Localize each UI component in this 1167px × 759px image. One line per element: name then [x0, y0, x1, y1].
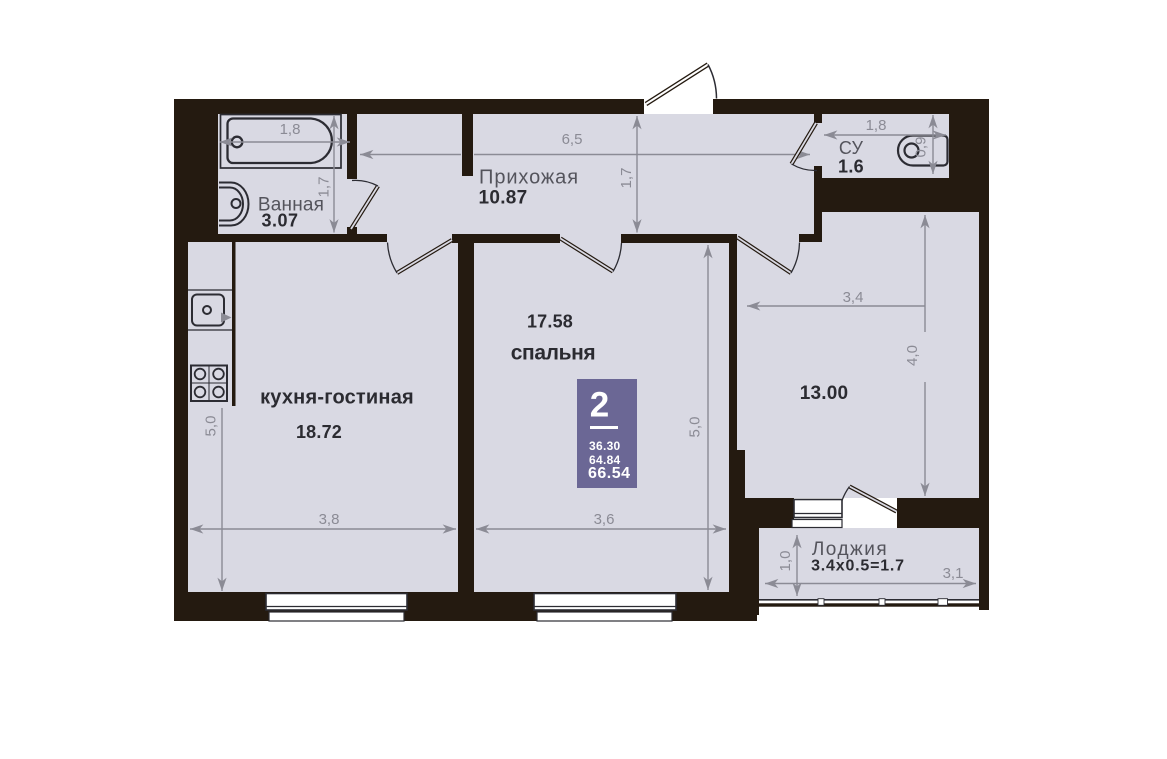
svg-text:66.54: 66.54 [588, 465, 631, 482]
svg-text:3,6: 3,6 [594, 511, 615, 528]
svg-text:5,0: 5,0 [687, 417, 704, 438]
svg-text:спальня: спальня [511, 342, 595, 365]
svg-text:2: 2 [590, 386, 609, 425]
svg-text:3.4x0.5=1.7: 3.4x0.5=1.7 [811, 558, 905, 575]
svg-text:3.07: 3.07 [261, 211, 298, 231]
svg-text:5,0: 5,0 [203, 416, 220, 437]
svg-text:0,9: 0,9 [913, 137, 930, 158]
svg-text:18.72: 18.72 [296, 422, 342, 442]
svg-text:10.87: 10.87 [478, 188, 527, 209]
svg-text:36.30: 36.30 [589, 439, 621, 453]
svg-text:17.58: 17.58 [527, 312, 573, 332]
svg-text:СУ: СУ [839, 138, 864, 158]
svg-text:1,8: 1,8 [280, 121, 301, 138]
svg-text:Прихожая: Прихожая [479, 167, 579, 189]
svg-text:6,5: 6,5 [562, 131, 583, 148]
svg-text:1,8: 1,8 [866, 117, 887, 134]
svg-text:1,0: 1,0 [777, 551, 794, 572]
svg-text:1.6: 1.6 [838, 157, 864, 177]
svg-text:кухня-гостиная: кухня-гостиная [260, 387, 414, 409]
svg-text:3,8: 3,8 [319, 511, 340, 528]
svg-text:4,0: 4,0 [904, 345, 921, 366]
svg-text:1,7: 1,7 [618, 168, 635, 189]
svg-text:3,1: 3,1 [943, 565, 964, 582]
svg-text:3,4: 3,4 [843, 289, 864, 306]
svg-text:13.00: 13.00 [800, 383, 849, 404]
